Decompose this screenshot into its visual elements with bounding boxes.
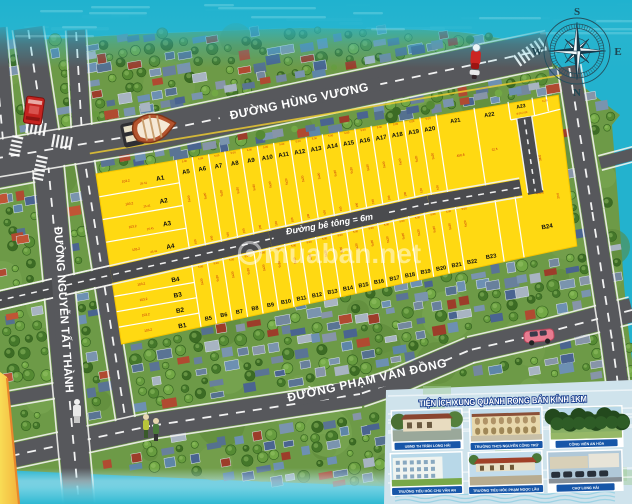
svg-text:A2: A2	[159, 197, 169, 205]
svg-text:S: S	[574, 6, 580, 18]
svg-text:E: E	[614, 46, 621, 58]
svg-text:A1: A1	[156, 174, 166, 182]
svg-text:B1: B1	[178, 322, 188, 330]
svg-text:B7: B7	[235, 309, 243, 316]
svg-text:N: N	[573, 87, 581, 99]
svg-text:B3: B3	[173, 291, 183, 299]
svg-text:CÔNG VIÊN AN HÒA: CÔNG VIÊN AN HÒA	[569, 441, 605, 447]
svg-text:B4: B4	[171, 276, 181, 284]
svg-text:B2: B2	[176, 307, 186, 315]
svg-text:B6: B6	[220, 312, 228, 319]
svg-text:A3: A3	[163, 220, 173, 228]
svg-text:B8: B8	[251, 305, 259, 312]
svg-text:muaban.net: muaban.net	[264, 238, 421, 269]
svg-text:B5: B5	[204, 316, 212, 323]
svg-text:A4: A4	[166, 243, 176, 251]
svg-text:W: W	[532, 46, 543, 58]
svg-text:B9: B9	[267, 302, 275, 309]
svg-text:CHỢ LONG HẢI: CHỢ LONG HẢI	[572, 485, 599, 491]
